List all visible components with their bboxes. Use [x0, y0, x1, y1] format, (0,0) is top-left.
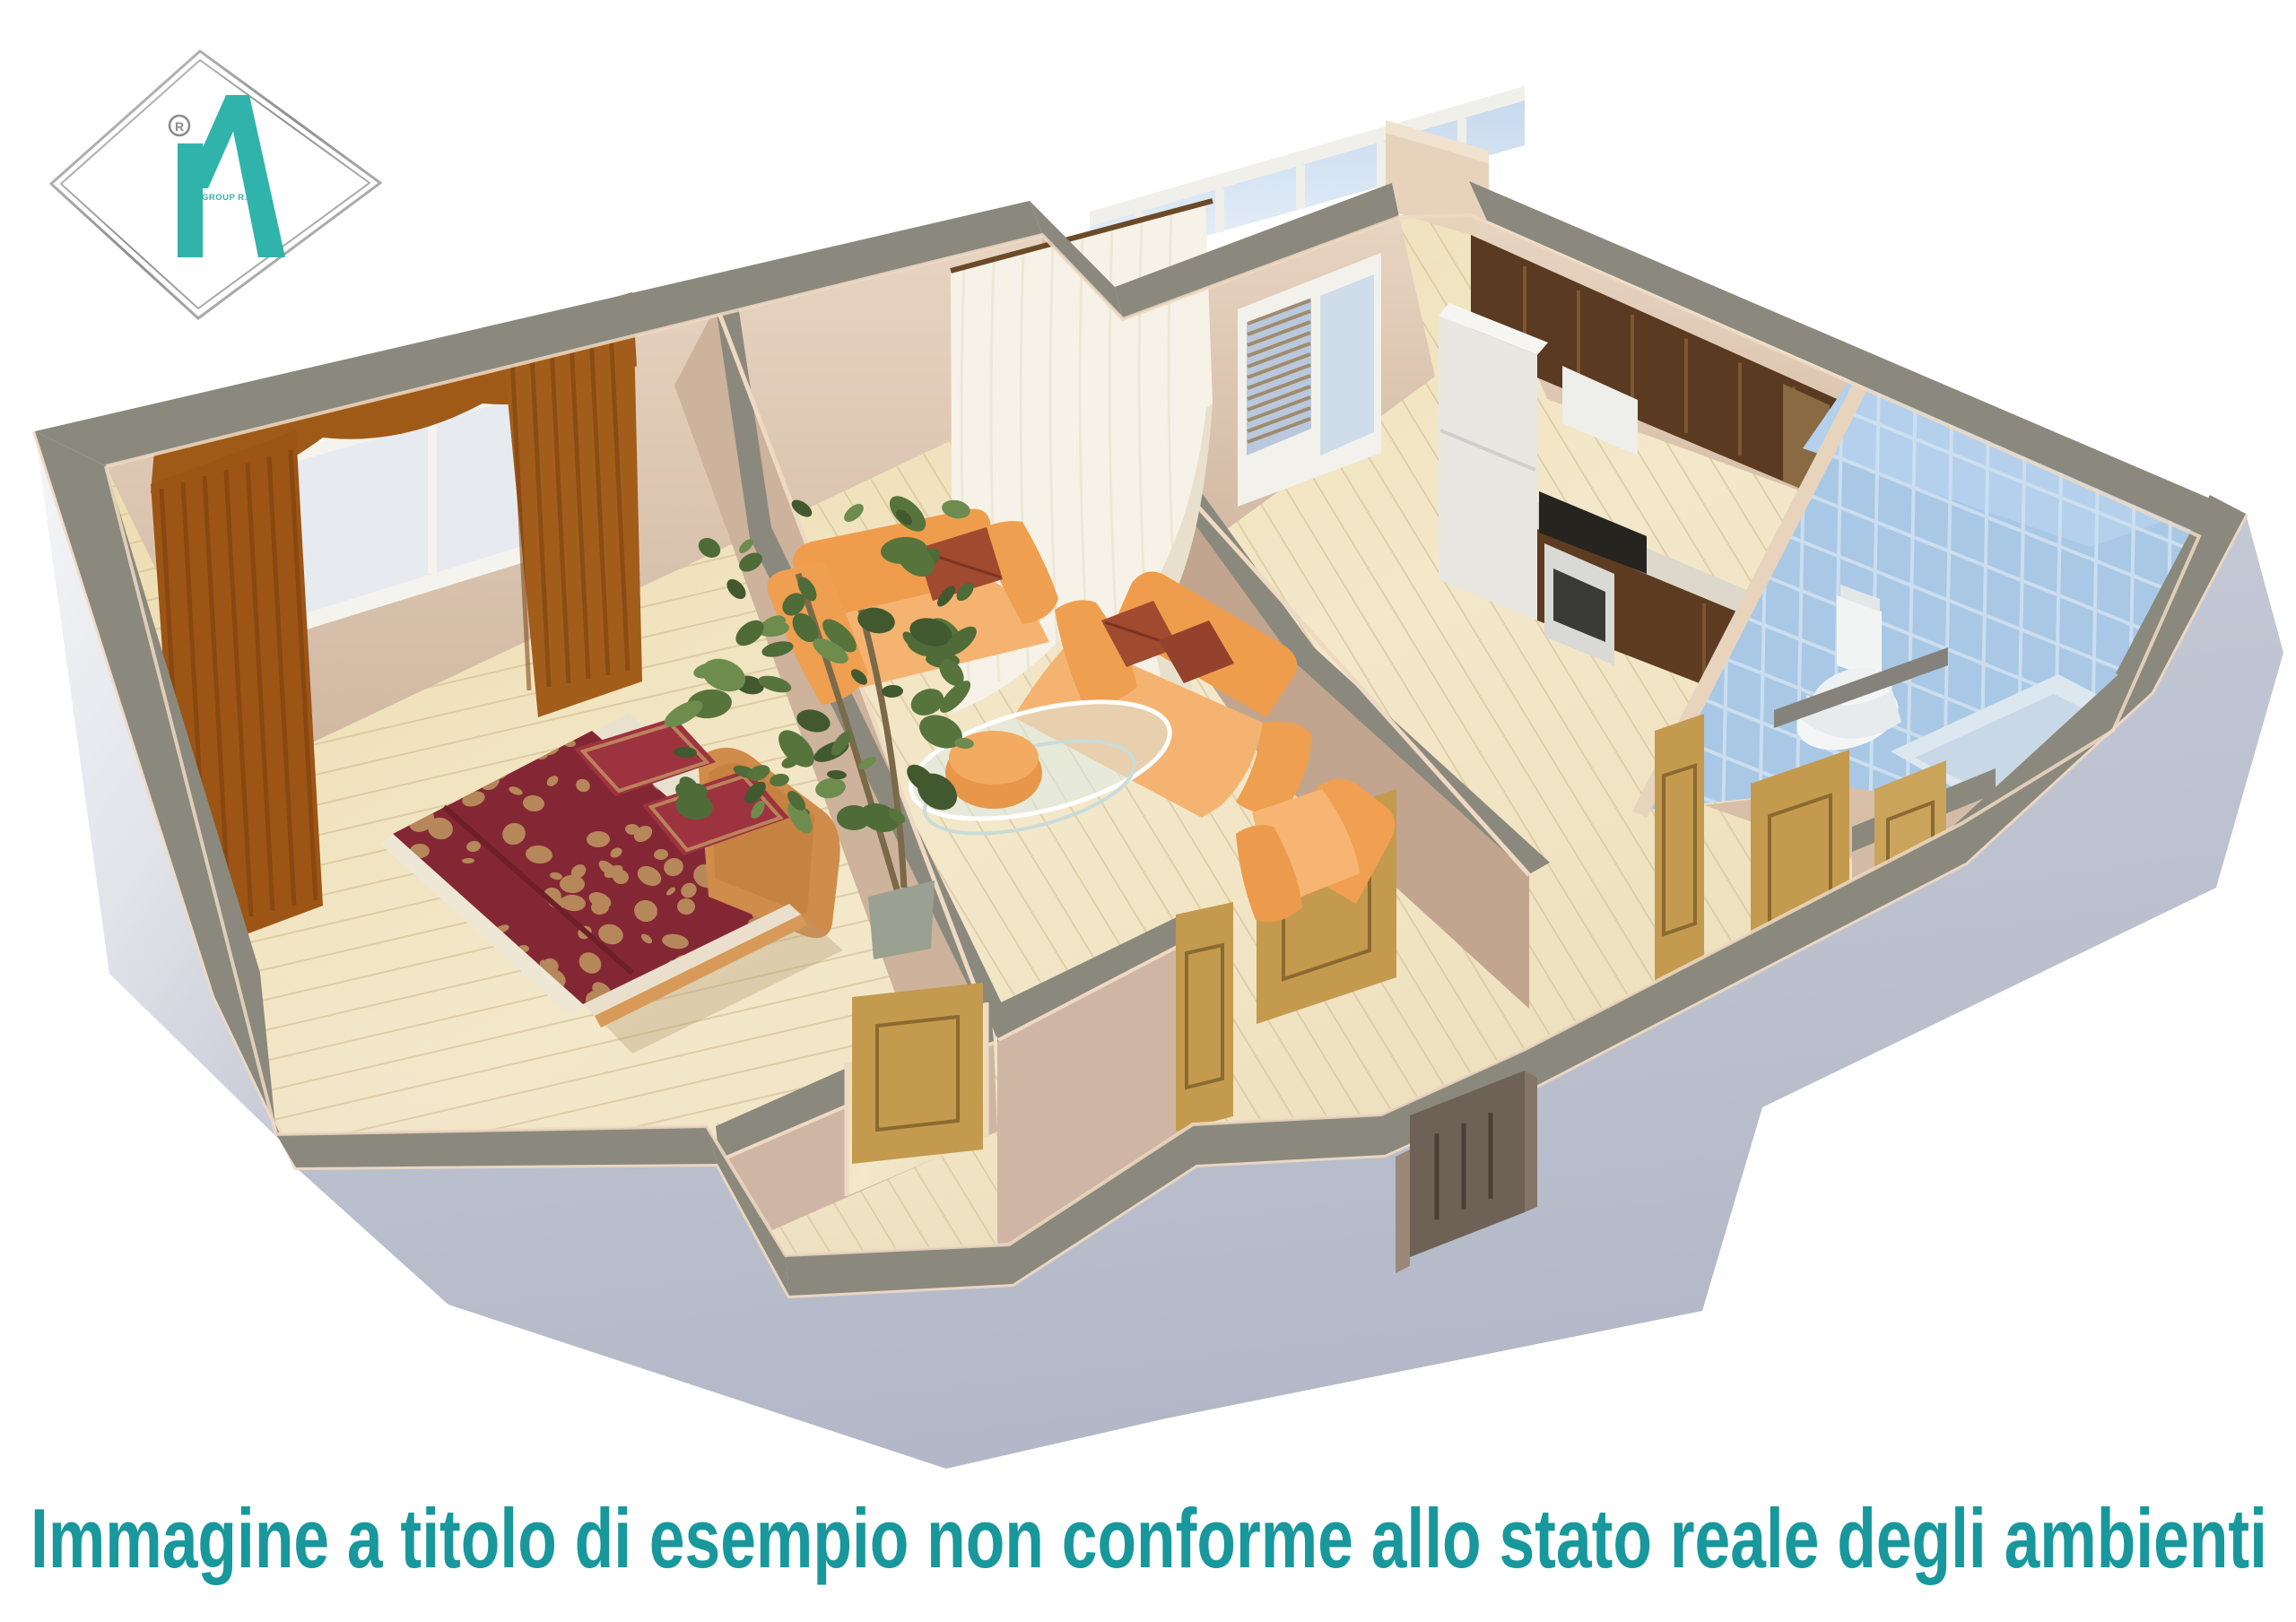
svg-text:R: R — [175, 119, 184, 134]
svg-text:GROUP R.E.: GROUP R.E. — [202, 193, 257, 203]
svg-text:Immagine a titolo di esempio n: Immagine a titolo di esempio non conform… — [30, 1491, 2267, 1585]
